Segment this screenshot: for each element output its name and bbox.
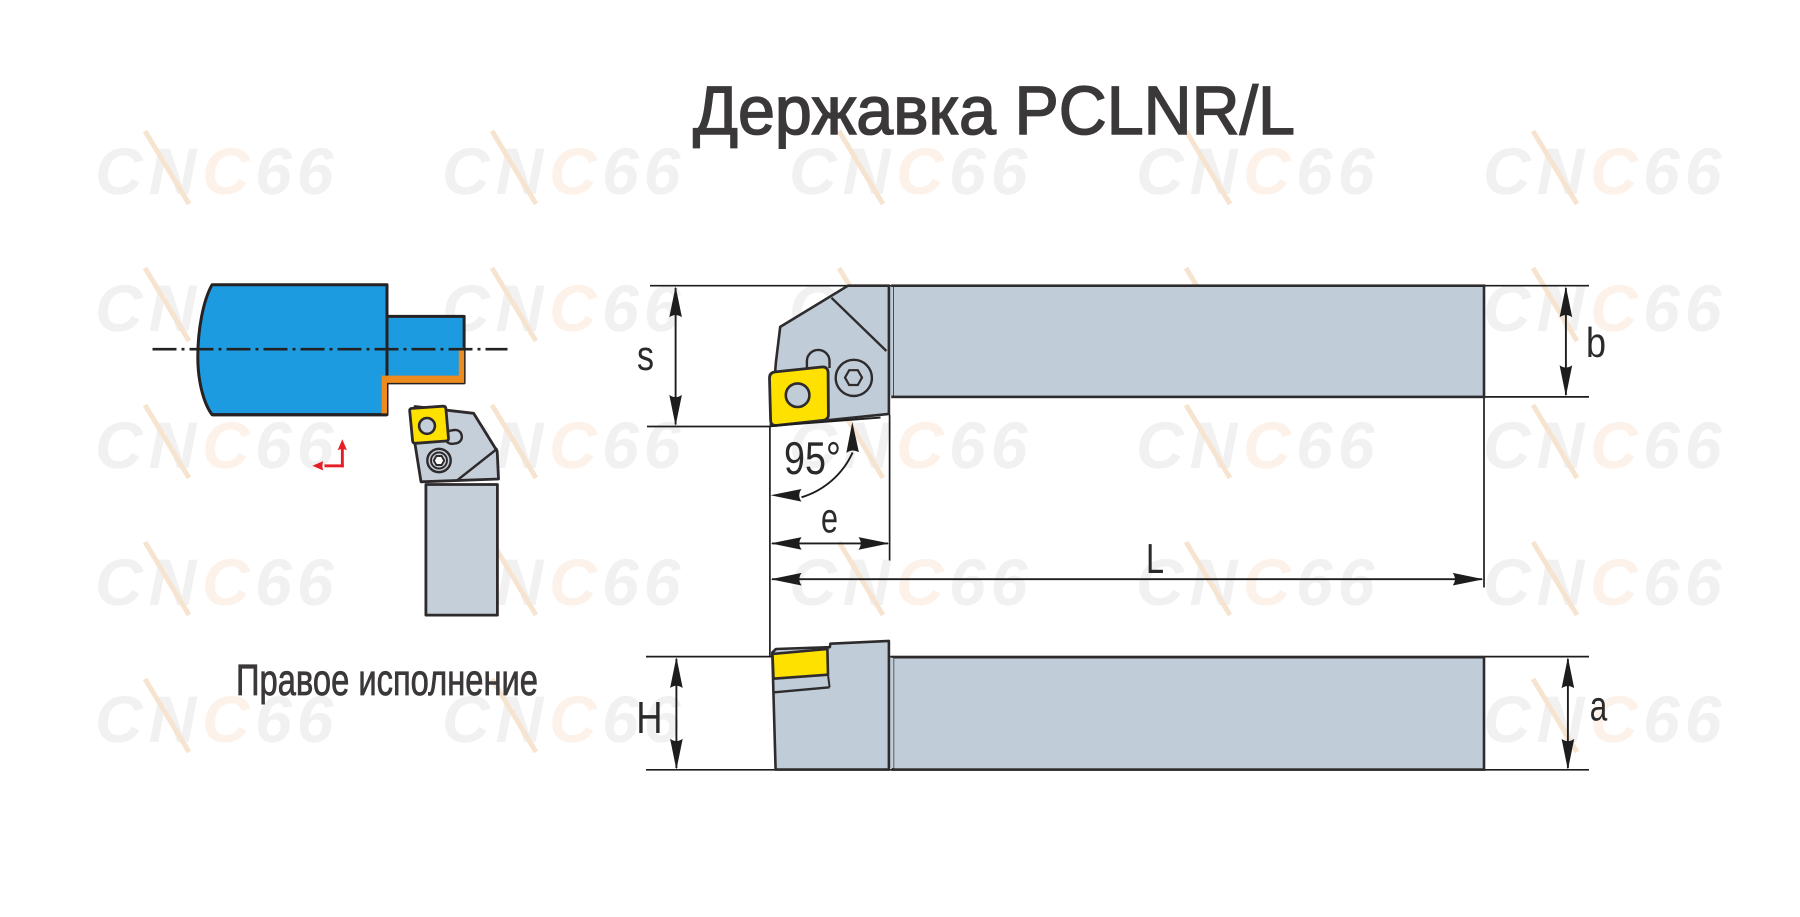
svg-text:e: e	[821, 495, 838, 542]
svg-text:Державка PCLNR/L: Державка PCLNR/L	[693, 72, 1295, 149]
svg-text:H: H	[636, 692, 662, 743]
svg-text:L: L	[1146, 535, 1164, 582]
svg-text:b: b	[1586, 319, 1606, 366]
svg-text:Правое исполнение: Правое исполнение	[236, 656, 538, 705]
svg-text:95°: 95°	[784, 432, 841, 484]
svg-text:a: a	[1590, 682, 1608, 729]
svg-text:s: s	[637, 332, 654, 379]
